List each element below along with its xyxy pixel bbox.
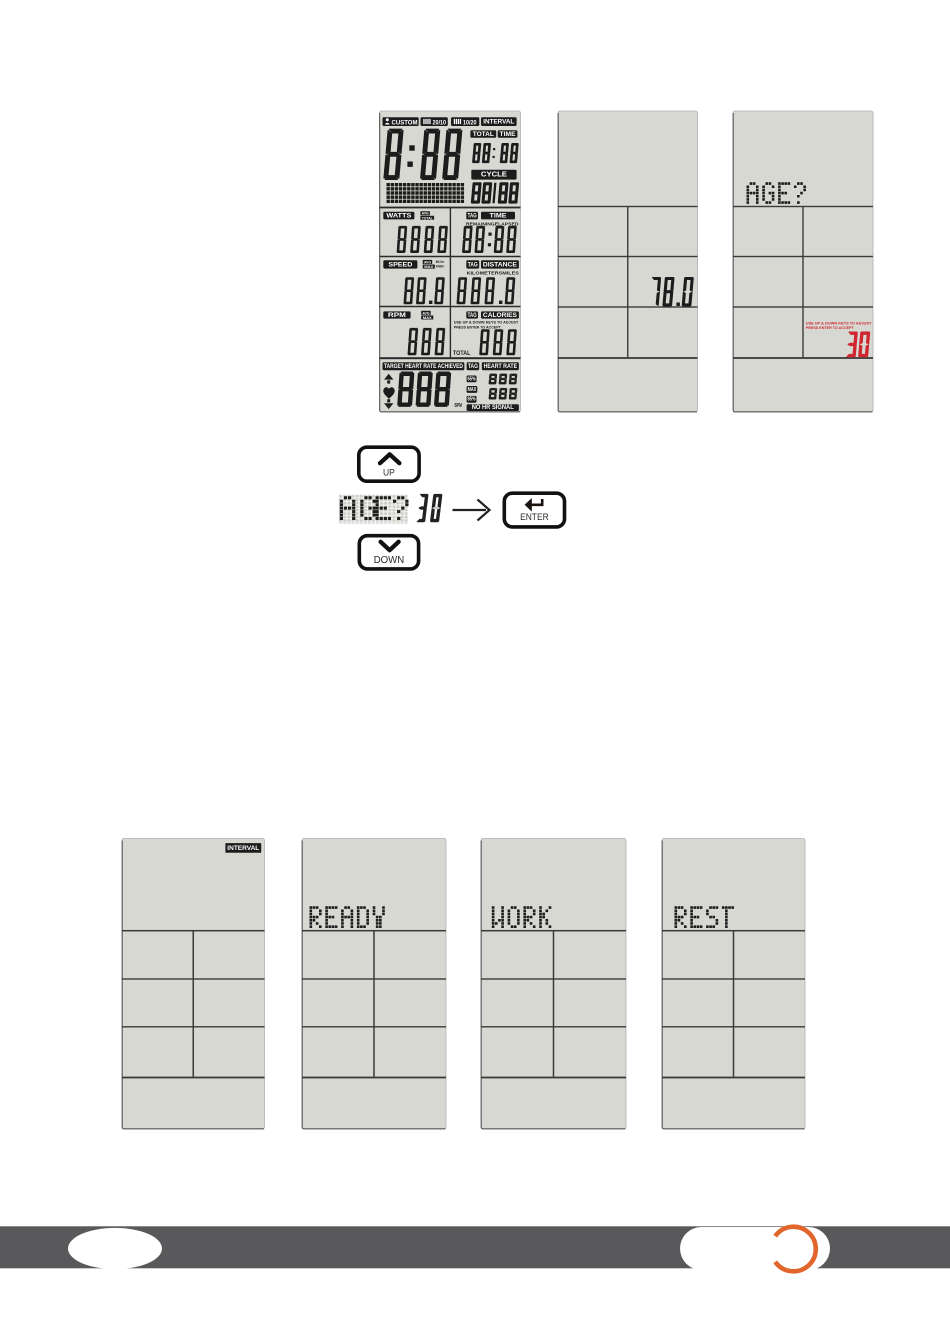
svg-text:DISTANCE: DISTANCE	[483, 261, 518, 268]
svg-text:UP: UP	[383, 468, 395, 479]
svg-text:10/20: 10/20	[463, 120, 477, 127]
svg-text:AVG: AVG	[422, 212, 429, 216]
svg-text:20/10: 20/10	[433, 120, 447, 127]
svg-text:TAG: TAG	[468, 363, 478, 370]
svg-text:RPM: RPM	[388, 312, 406, 319]
svg-text:INTERVAL: INTERVAL	[227, 845, 259, 852]
svg-text:HEART RATE: HEART RATE	[484, 363, 518, 370]
svg-text:MAX: MAX	[468, 387, 477, 393]
svg-text:TIME: TIME	[500, 131, 516, 138]
svg-text:KM/hr: KM/hr	[436, 265, 445, 269]
svg-text:MAX: MAX	[424, 265, 434, 269]
svg-text:SPEED: SPEED	[388, 261, 412, 268]
svg-text:85%: 85%	[468, 397, 476, 403]
svg-text:NO HR SIGNAL: NO HR SIGNAL	[472, 405, 514, 411]
svg-text:65%: 65%	[468, 376, 476, 382]
svg-text:TAG: TAG	[468, 213, 477, 220]
svg-text:TAG: TAG	[468, 261, 478, 268]
svg-text:ENTER: ENTER	[520, 512, 549, 522]
svg-text:AVG: AVG	[422, 311, 429, 315]
svg-text:WATTS: WATTS	[386, 213, 412, 220]
svg-text:PRESS ENTER TO ACCEPT: PRESS ENTER TO ACCEPT	[806, 325, 855, 330]
svg-text:TOTAL: TOTAL	[473, 131, 494, 138]
svg-text:CUSTOM: CUSTOM	[392, 120, 418, 127]
svg-text:TAG: TAG	[468, 312, 477, 319]
svg-text:TARGET HEART RATE ACHIEVED: TARGET HEART RATE ACHIEVED	[384, 363, 463, 370]
svg-text:MI./hr: MI./hr	[436, 260, 445, 264]
svg-text:REMAININGELAPSED: REMAININGELAPSED	[466, 221, 519, 226]
svg-text:MAX: MAX	[423, 316, 433, 320]
svg-text:AVG: AVG	[424, 260, 431, 264]
svg-text:INTERVAL: INTERVAL	[483, 119, 514, 126]
svg-text:PRESS ENTER TO ACCEPT: PRESS ENTER TO ACCEPT	[454, 325, 502, 330]
svg-text:CYCLE: CYCLE	[481, 172, 507, 179]
svg-text:KILOMETERSMILES: KILOMETERSMILES	[467, 270, 519, 275]
svg-text:TOTAL: TOTAL	[453, 351, 471, 357]
svg-text:TIME: TIME	[490, 213, 508, 220]
svg-text:CALORIES: CALORIES	[483, 312, 518, 319]
svg-text:TOTAL: TOTAL	[422, 216, 433, 220]
svg-text:DOWN: DOWN	[374, 555, 405, 566]
svg-text:BPM: BPM	[455, 403, 463, 409]
